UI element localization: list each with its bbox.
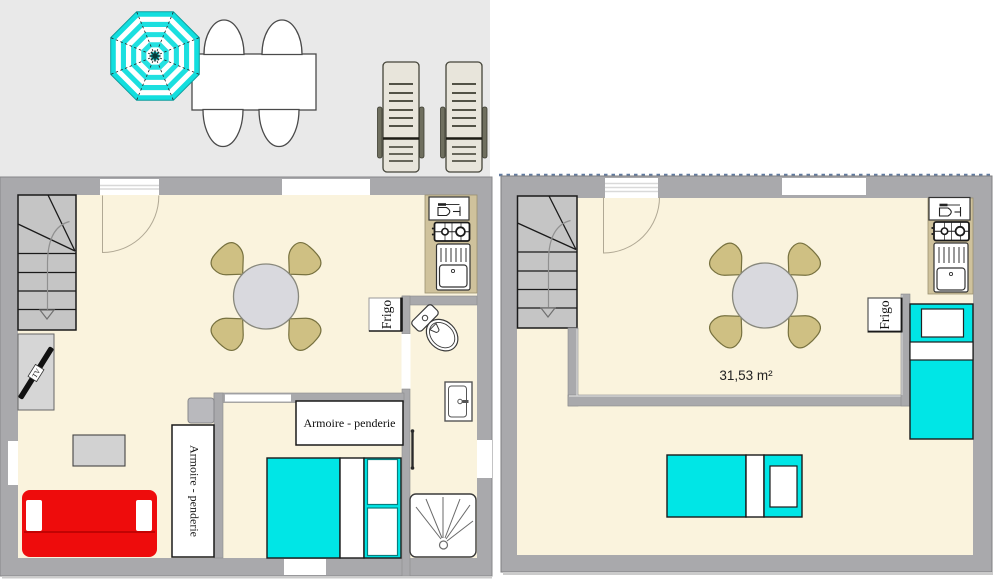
svg-text:Frigo: Frigo — [379, 300, 394, 330]
svg-text:Armoire - penderie: Armoire - penderie — [187, 445, 201, 537]
svg-text:Frigo: Frigo — [877, 300, 892, 330]
svg-text:Armoire - penderie: Armoire - penderie — [304, 416, 396, 430]
svg-text:31,53 m²: 31,53 m² — [719, 368, 773, 383]
